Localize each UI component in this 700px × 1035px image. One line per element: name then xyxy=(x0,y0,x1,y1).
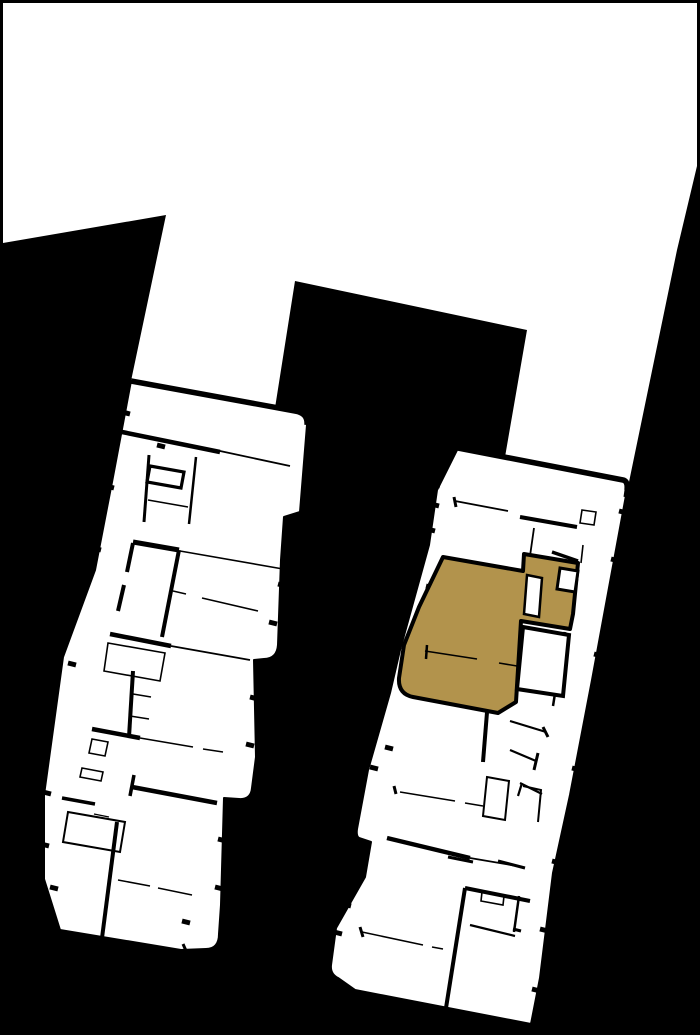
window-tick xyxy=(611,559,619,561)
window-tick xyxy=(385,747,393,749)
window-tick xyxy=(215,887,223,889)
window-tick xyxy=(540,929,548,931)
window-tick xyxy=(68,663,76,665)
unit-partition-line xyxy=(426,645,427,659)
window-tick xyxy=(106,486,114,488)
wall-line xyxy=(394,786,396,794)
window-tick xyxy=(572,768,580,770)
window-tick xyxy=(427,529,435,531)
window-tick xyxy=(343,904,351,906)
wall-line xyxy=(454,497,456,507)
window-tick xyxy=(218,839,226,841)
window-tick xyxy=(359,849,367,851)
window-tick xyxy=(269,622,277,624)
stair-notch xyxy=(557,568,578,592)
window-tick xyxy=(246,744,254,746)
window-tick xyxy=(432,484,440,486)
window-tick xyxy=(250,697,258,699)
window-tick xyxy=(619,511,627,513)
wall-line xyxy=(625,483,627,497)
window-tick xyxy=(552,861,560,863)
window-tick xyxy=(334,932,342,934)
wall-line xyxy=(513,929,521,931)
window-tick xyxy=(122,412,130,414)
window-tick xyxy=(93,548,101,550)
window-tick xyxy=(41,844,49,846)
site-plan-svg xyxy=(0,0,700,1035)
window-tick xyxy=(532,989,540,991)
window-tick xyxy=(370,767,378,769)
window-tick xyxy=(157,445,165,447)
window-tick xyxy=(278,584,286,586)
interior-room-cutout xyxy=(524,575,542,617)
window-tick xyxy=(431,504,439,506)
window-tick xyxy=(43,792,51,794)
window-tick xyxy=(50,887,58,889)
site-plan-stage xyxy=(0,0,700,1035)
window-tick xyxy=(594,654,602,656)
adjacent-room-cutout xyxy=(517,627,569,696)
window-tick xyxy=(182,921,190,923)
